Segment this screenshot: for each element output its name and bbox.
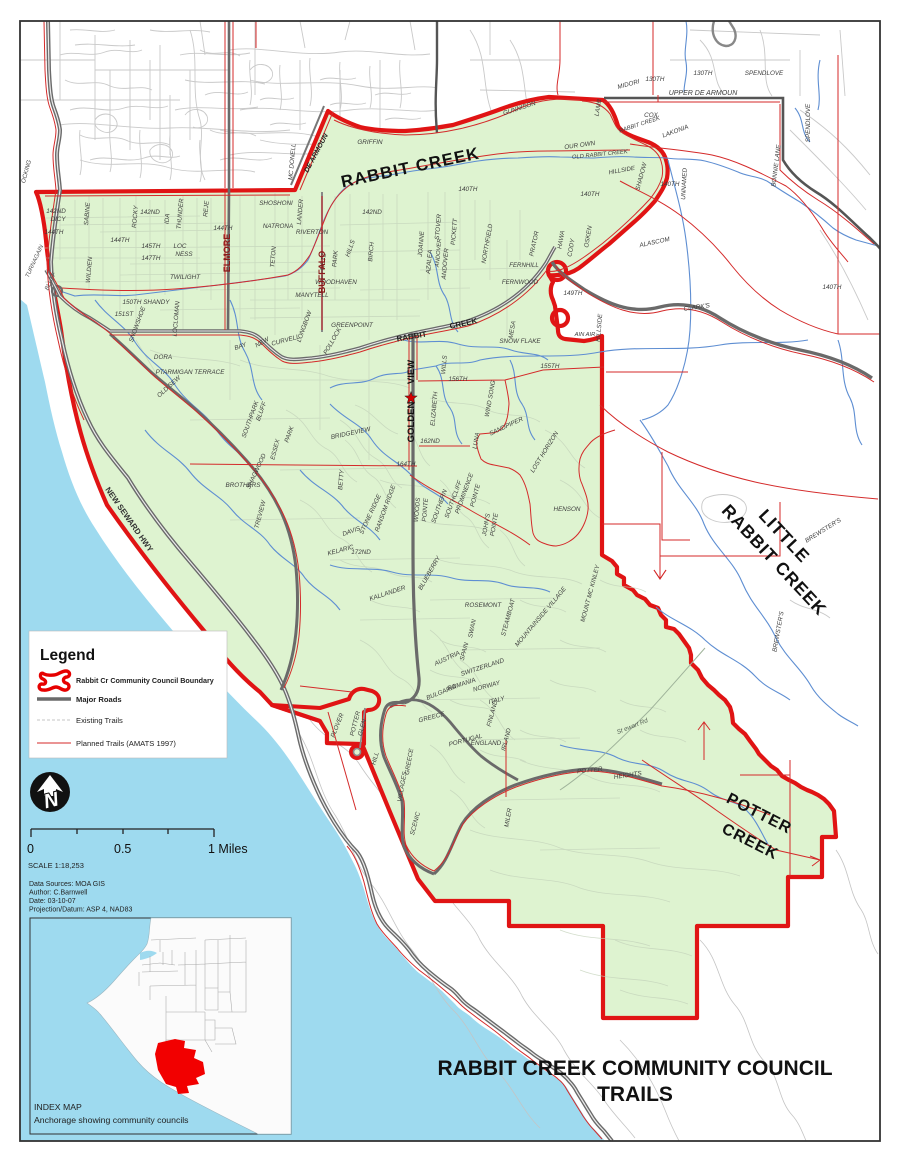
- svg-text:0.5: 0.5: [114, 842, 131, 856]
- svg-text:144TH: 144TH: [111, 237, 130, 244]
- svg-text:142ND: 142ND: [140, 209, 160, 216]
- svg-text:INDEX MAP: INDEX MAP: [34, 1102, 82, 1112]
- svg-text:SPENDLOVE: SPENDLOVE: [805, 103, 812, 142]
- svg-text:151ST: 151ST: [115, 311, 135, 318]
- svg-text:UPPER DE ARMOUN: UPPER DE ARMOUN: [669, 90, 739, 97]
- svg-text:RABBIT CREEK COMMUNITY COUNCIL: RABBIT CREEK COMMUNITY COUNCIL: [437, 1057, 832, 1080]
- svg-text:140TH: 140TH: [823, 284, 842, 291]
- svg-text:DORA: DORA: [154, 354, 172, 361]
- svg-text:Projection/Datum: ASP 4, NAD83: Projection/Datum: ASP 4, NAD83: [29, 907, 132, 914]
- svg-text:SPENDLOVE: SPENDLOVE: [745, 70, 784, 77]
- svg-text:144TH: 144TH: [214, 225, 233, 232]
- svg-text:142ND: 142ND: [362, 209, 382, 216]
- svg-text:SNOW FLAKE: SNOW FLAKE: [499, 338, 541, 345]
- svg-text:VIEW: VIEW: [406, 360, 417, 384]
- svg-text:Anchorage showing community co: Anchorage showing community councils: [34, 1115, 189, 1125]
- svg-text:164TH: 164TH: [397, 461, 416, 468]
- svg-text:156TH: 156TH: [449, 376, 468, 383]
- svg-text:BROTHERS: BROTHERS: [226, 482, 262, 489]
- svg-text:FERNHILL: FERNHILL: [509, 262, 538, 269]
- svg-text:BUFFALO: BUFFALO: [317, 251, 327, 294]
- svg-text:GRIFFIN: GRIFFIN: [357, 139, 383, 146]
- svg-text:IDA: IDA: [164, 213, 172, 224]
- svg-text:Data Sources: MOA GIS: Data Sources: MOA GIS: [29, 881, 105, 888]
- svg-text:DICY: DICY: [50, 216, 66, 223]
- svg-text:142ND: 142ND: [46, 208, 66, 215]
- svg-text:RIVERTON: RIVERTON: [296, 229, 329, 236]
- svg-text:NATRONA: NATRONA: [263, 223, 293, 230]
- svg-text:147TH: 147TH: [142, 255, 161, 262]
- svg-text:REJE: REJE: [202, 200, 210, 217]
- svg-text:130TH: 130TH: [694, 70, 713, 77]
- svg-text:Existing Trails: Existing Trails: [76, 716, 123, 725]
- svg-text:NESS: NESS: [175, 251, 193, 258]
- svg-text:155TH: 155TH: [541, 363, 560, 370]
- svg-text:Planned Trails (AMATS 1997): Planned Trails (AMATS 1997): [76, 739, 176, 748]
- svg-text:ROSEMONT: ROSEMONT: [465, 602, 503, 609]
- svg-text:Legend: Legend: [40, 647, 95, 664]
- svg-text:FERNWOOD: FERNWOOD: [502, 279, 539, 286]
- svg-text:GOLDEN: GOLDEN: [406, 402, 417, 443]
- svg-text:HENSON: HENSON: [554, 506, 581, 513]
- svg-text:PTARMIGAN TERRACE: PTARMIGAN TERRACE: [156, 369, 226, 376]
- svg-text:149TH: 149TH: [564, 290, 583, 297]
- svg-text:ELMORE: ELMORE: [222, 234, 232, 273]
- svg-text:145TH: 145TH: [142, 243, 161, 250]
- svg-text:150TH SHANDY: 150TH SHANDY: [123, 299, 171, 306]
- svg-text:AIN AIR: AIN AIR: [574, 332, 597, 338]
- svg-text:TRAILS: TRAILS: [597, 1083, 673, 1106]
- svg-text:1 Miles: 1 Miles: [208, 842, 248, 856]
- svg-text:0: 0: [27, 842, 34, 856]
- svg-text:SCALE 1:18,253: SCALE 1:18,253: [28, 861, 84, 870]
- svg-text:140TH: 140TH: [581, 191, 600, 198]
- svg-text:162ND: 162ND: [420, 438, 440, 445]
- svg-text:Author: C.Barnwell: Author: C.Barnwell: [29, 890, 88, 897]
- svg-text:Date: 03-10-07: Date: 03-10-07: [29, 898, 76, 905]
- svg-text:SHOSHONI: SHOSHONI: [259, 200, 293, 207]
- svg-text:130TH: 130TH: [646, 76, 665, 83]
- svg-text:TWILIGHT: TWILIGHT: [170, 274, 201, 281]
- svg-text:140TH: 140TH: [459, 186, 478, 193]
- svg-text:LOC: LOC: [174, 243, 187, 250]
- svg-text:140TH: 140TH: [661, 181, 680, 188]
- svg-text:144TH: 144TH: [45, 229, 64, 236]
- svg-text:Rabbit Cr Community Council Bo: Rabbit Cr Community Council Boundary: [76, 676, 214, 685]
- svg-text:Major Roads: Major Roads: [76, 695, 122, 704]
